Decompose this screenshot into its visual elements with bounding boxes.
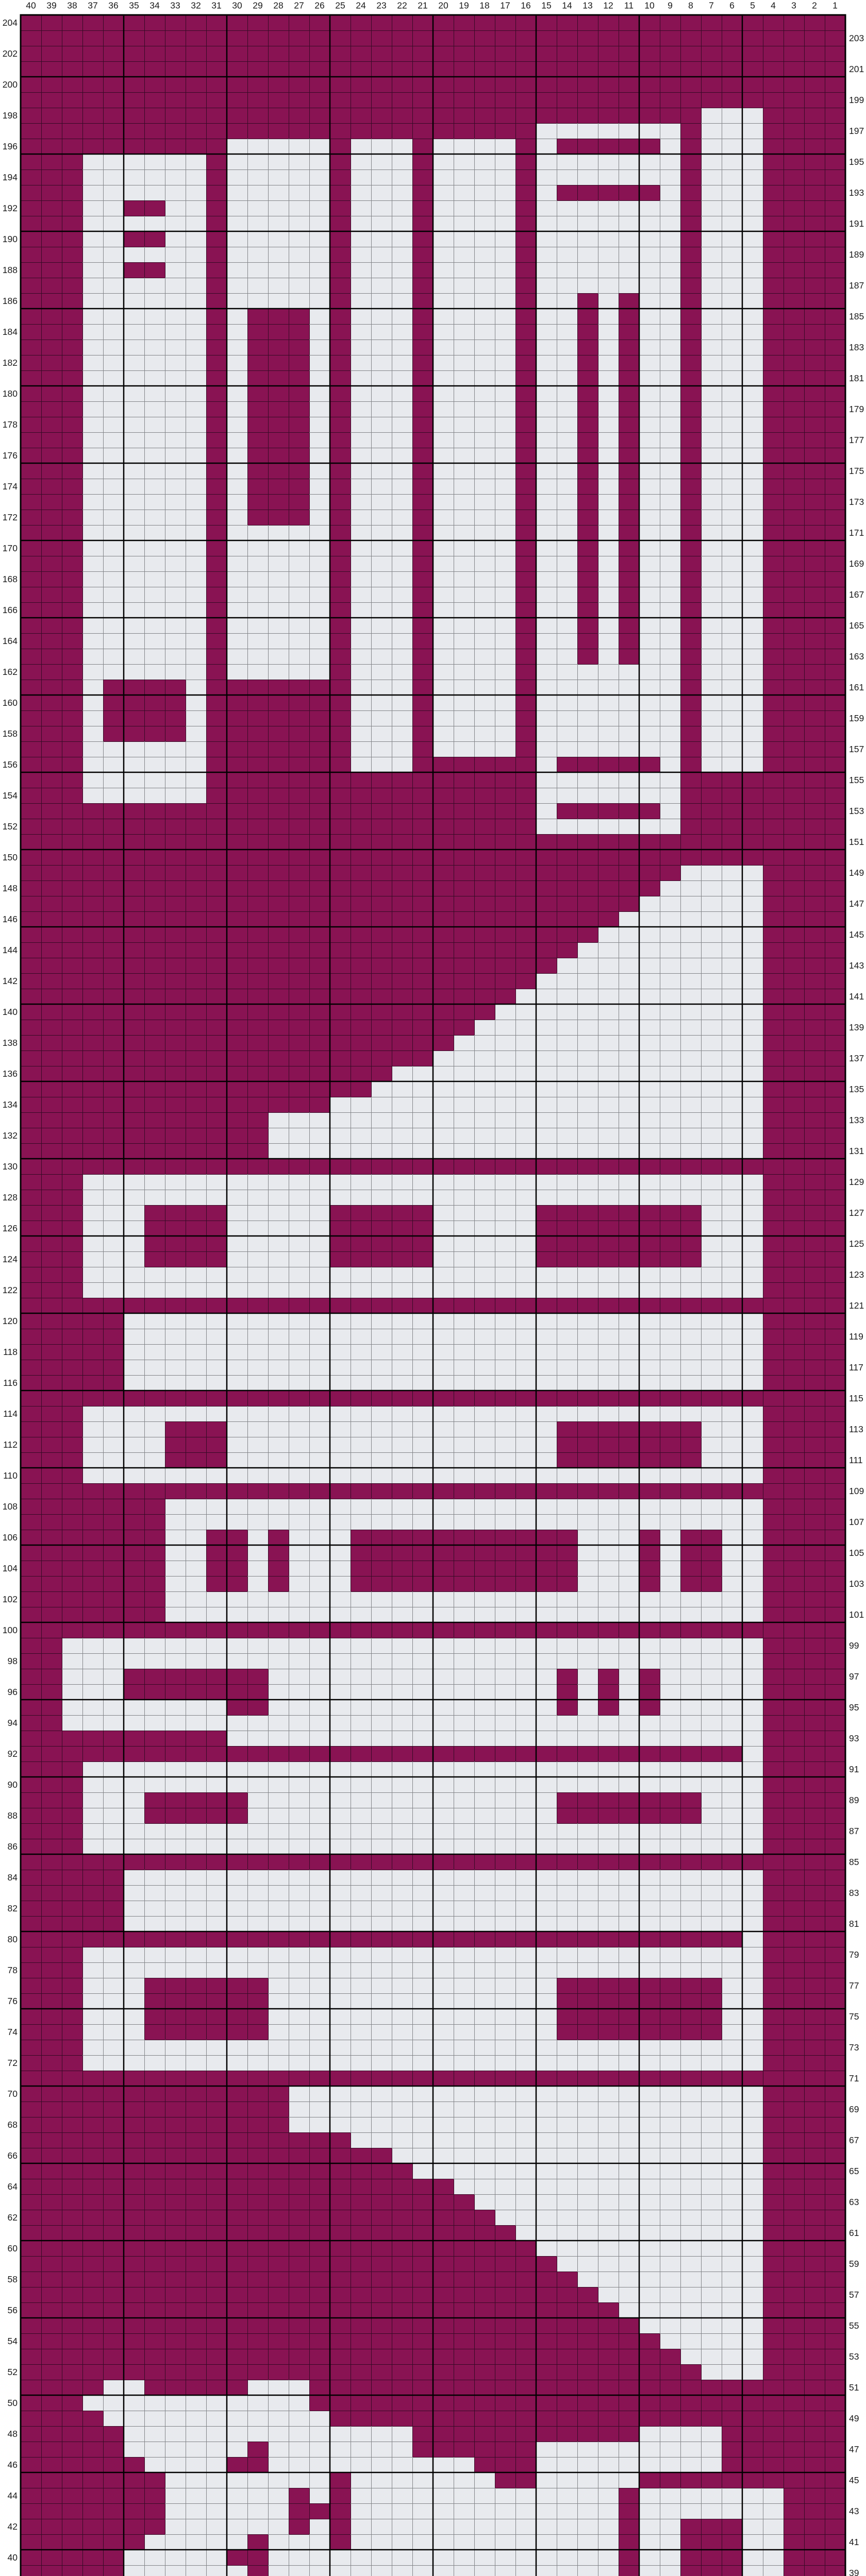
svg-text:100: 100 <box>3 1625 18 1635</box>
svg-text:88: 88 <box>8 1810 18 1821</box>
svg-text:7: 7 <box>709 1 714 11</box>
svg-text:153: 153 <box>849 806 864 816</box>
svg-text:56: 56 <box>8 2305 18 2315</box>
svg-text:177: 177 <box>849 435 864 445</box>
svg-text:21: 21 <box>418 1 427 11</box>
svg-text:42: 42 <box>8 2521 18 2532</box>
svg-text:114: 114 <box>3 1409 18 1419</box>
svg-text:110: 110 <box>3 1470 18 1481</box>
svg-text:14: 14 <box>562 1 572 11</box>
svg-text:8: 8 <box>688 1 693 11</box>
svg-text:6: 6 <box>729 1 735 11</box>
svg-text:113: 113 <box>849 1424 863 1434</box>
svg-text:171: 171 <box>849 528 864 538</box>
svg-text:26: 26 <box>314 1 324 11</box>
svg-text:141: 141 <box>849 991 864 1002</box>
svg-text:117: 117 <box>849 1362 863 1372</box>
svg-text:9: 9 <box>668 1 673 11</box>
svg-text:25: 25 <box>335 1 345 11</box>
svg-text:162: 162 <box>3 667 18 677</box>
svg-text:122: 122 <box>3 1285 18 1295</box>
svg-text:199: 199 <box>849 95 864 105</box>
svg-text:4: 4 <box>771 1 776 11</box>
svg-text:81: 81 <box>849 1919 859 1929</box>
svg-text:126: 126 <box>3 1223 18 1233</box>
svg-text:1: 1 <box>832 1 838 11</box>
svg-text:200: 200 <box>3 79 18 90</box>
svg-text:170: 170 <box>3 543 18 553</box>
svg-text:39: 39 <box>849 2568 859 2576</box>
svg-text:20: 20 <box>438 1 448 11</box>
svg-text:150: 150 <box>3 852 18 862</box>
svg-text:169: 169 <box>849 558 864 569</box>
svg-text:119: 119 <box>849 1331 863 1342</box>
svg-text:137: 137 <box>849 1053 864 1063</box>
svg-text:86: 86 <box>8 1841 18 1852</box>
svg-text:194: 194 <box>3 172 18 182</box>
svg-text:197: 197 <box>849 126 864 136</box>
svg-text:83: 83 <box>849 1888 859 1898</box>
svg-text:133: 133 <box>849 1115 864 1125</box>
svg-text:130: 130 <box>3 1161 18 1172</box>
svg-text:89: 89 <box>849 1795 859 1805</box>
svg-text:47: 47 <box>849 2444 859 2454</box>
svg-text:61: 61 <box>849 2228 859 2238</box>
svg-text:168: 168 <box>3 574 18 584</box>
svg-text:44: 44 <box>8 2490 18 2501</box>
svg-text:10: 10 <box>644 1 655 11</box>
svg-text:160: 160 <box>3 698 18 708</box>
svg-text:40: 40 <box>8 2552 18 2563</box>
svg-text:167: 167 <box>849 589 864 600</box>
svg-text:128: 128 <box>3 1192 18 1202</box>
svg-text:90: 90 <box>8 1780 18 1790</box>
svg-text:68: 68 <box>8 2120 18 2130</box>
svg-text:124: 124 <box>3 1254 18 1264</box>
svg-text:102: 102 <box>3 1594 18 1604</box>
svg-text:123: 123 <box>849 1269 864 1280</box>
svg-text:165: 165 <box>849 620 864 631</box>
svg-text:38: 38 <box>67 1 77 11</box>
svg-text:203: 203 <box>849 33 864 43</box>
svg-text:98: 98 <box>8 1656 18 1666</box>
svg-text:65: 65 <box>849 2166 859 2176</box>
svg-text:156: 156 <box>3 759 18 770</box>
svg-text:5: 5 <box>750 1 755 11</box>
svg-text:173: 173 <box>849 497 864 507</box>
svg-text:40: 40 <box>26 1 36 11</box>
svg-text:121: 121 <box>849 1300 864 1311</box>
svg-text:23: 23 <box>376 1 386 11</box>
svg-text:51: 51 <box>849 2382 859 2393</box>
svg-text:112: 112 <box>3 1439 18 1450</box>
svg-text:152: 152 <box>3 821 18 832</box>
svg-text:196: 196 <box>3 141 18 151</box>
svg-text:129: 129 <box>849 1177 864 1187</box>
svg-text:154: 154 <box>3 790 18 801</box>
svg-text:146: 146 <box>3 914 18 924</box>
svg-text:193: 193 <box>849 188 864 198</box>
svg-text:127: 127 <box>849 1208 864 1218</box>
svg-text:29: 29 <box>253 1 262 11</box>
svg-text:179: 179 <box>849 404 864 414</box>
svg-text:135: 135 <box>849 1084 864 1094</box>
svg-text:201: 201 <box>849 64 864 74</box>
svg-text:27: 27 <box>294 1 304 11</box>
svg-text:50: 50 <box>8 2398 18 2408</box>
svg-text:92: 92 <box>8 1749 18 1759</box>
svg-text:66: 66 <box>8 2150 18 2161</box>
svg-text:136: 136 <box>3 1069 18 1079</box>
svg-text:46: 46 <box>8 2460 18 2470</box>
svg-text:15: 15 <box>541 1 551 11</box>
svg-text:159: 159 <box>849 713 864 723</box>
svg-text:35: 35 <box>129 1 139 11</box>
svg-text:85: 85 <box>849 1857 859 1867</box>
svg-text:161: 161 <box>849 682 864 692</box>
svg-text:80: 80 <box>8 1934 18 1944</box>
svg-text:45: 45 <box>849 2475 859 2485</box>
svg-text:33: 33 <box>170 1 180 11</box>
svg-text:101: 101 <box>849 1609 864 1620</box>
svg-text:67: 67 <box>849 2135 859 2145</box>
svg-text:96: 96 <box>8 1687 18 1697</box>
svg-text:91: 91 <box>849 1764 859 1774</box>
svg-text:93: 93 <box>849 1733 859 1743</box>
svg-text:64: 64 <box>8 2181 18 2192</box>
svg-text:49: 49 <box>849 2413 859 2424</box>
svg-text:71: 71 <box>849 2073 859 2083</box>
svg-text:2: 2 <box>812 1 817 11</box>
svg-text:191: 191 <box>849 218 864 229</box>
svg-text:131: 131 <box>849 1146 864 1156</box>
svg-text:16: 16 <box>521 1 530 11</box>
svg-text:36: 36 <box>108 1 118 11</box>
svg-text:55: 55 <box>849 2320 859 2331</box>
svg-text:32: 32 <box>191 1 201 11</box>
svg-text:77: 77 <box>849 1980 859 1991</box>
svg-text:189: 189 <box>849 249 864 260</box>
svg-text:155: 155 <box>849 775 864 785</box>
svg-text:97: 97 <box>849 1671 859 1682</box>
svg-text:144: 144 <box>3 945 18 955</box>
svg-text:72: 72 <box>8 2058 18 2068</box>
svg-text:115: 115 <box>849 1393 863 1403</box>
svg-text:158: 158 <box>3 728 18 739</box>
svg-text:139: 139 <box>849 1022 864 1032</box>
svg-text:188: 188 <box>3 265 18 275</box>
svg-text:132: 132 <box>3 1130 18 1141</box>
svg-text:82: 82 <box>8 1903 18 1913</box>
svg-text:43: 43 <box>849 2506 859 2516</box>
svg-text:195: 195 <box>849 157 864 167</box>
svg-text:190: 190 <box>3 234 18 244</box>
svg-text:147: 147 <box>849 899 864 909</box>
svg-text:108: 108 <box>3 1501 18 1512</box>
svg-text:28: 28 <box>273 1 283 11</box>
svg-text:87: 87 <box>849 1826 859 1836</box>
svg-text:103: 103 <box>849 1579 864 1589</box>
svg-text:151: 151 <box>849 837 864 847</box>
svg-text:69: 69 <box>849 2104 859 2114</box>
svg-text:142: 142 <box>3 976 18 986</box>
svg-text:192: 192 <box>3 203 18 213</box>
svg-text:17: 17 <box>500 1 510 11</box>
svg-text:172: 172 <box>3 512 18 522</box>
svg-text:187: 187 <box>849 280 864 291</box>
svg-text:185: 185 <box>849 311 864 321</box>
svg-text:138: 138 <box>3 1038 18 1048</box>
svg-text:116: 116 <box>3 1378 18 1388</box>
svg-text:183: 183 <box>849 342 864 352</box>
svg-text:176: 176 <box>3 450 18 461</box>
svg-text:178: 178 <box>3 419 18 430</box>
svg-text:30: 30 <box>232 1 242 11</box>
svg-text:70: 70 <box>8 2089 18 2099</box>
svg-text:41: 41 <box>849 2537 859 2547</box>
svg-text:13: 13 <box>582 1 592 11</box>
svg-text:145: 145 <box>849 929 864 940</box>
svg-text:204: 204 <box>3 18 18 28</box>
svg-text:34: 34 <box>149 1 160 11</box>
svg-text:105: 105 <box>849 1548 864 1558</box>
svg-text:63: 63 <box>849 2197 859 2207</box>
svg-text:94: 94 <box>8 1718 18 1728</box>
svg-text:164: 164 <box>3 636 18 646</box>
svg-text:73: 73 <box>849 2042 859 2053</box>
svg-text:148: 148 <box>3 883 18 893</box>
svg-text:120: 120 <box>3 1316 18 1326</box>
svg-text:157: 157 <box>849 744 864 754</box>
svg-text:104: 104 <box>3 1563 18 1573</box>
svg-text:99: 99 <box>849 1640 859 1651</box>
svg-text:75: 75 <box>849 2011 859 2022</box>
svg-text:175: 175 <box>849 466 864 476</box>
svg-text:111: 111 <box>849 1455 863 1465</box>
svg-text:3: 3 <box>791 1 796 11</box>
svg-text:166: 166 <box>3 605 18 615</box>
svg-text:180: 180 <box>3 388 18 399</box>
svg-text:109: 109 <box>849 1486 864 1496</box>
svg-text:95: 95 <box>849 1702 859 1713</box>
svg-text:37: 37 <box>88 1 97 11</box>
svg-text:59: 59 <box>849 2259 859 2269</box>
svg-text:57: 57 <box>849 2290 859 2300</box>
svg-text:84: 84 <box>8 1872 18 1883</box>
svg-text:53: 53 <box>849 2351 859 2362</box>
svg-text:74: 74 <box>8 2027 18 2037</box>
svg-text:181: 181 <box>849 373 864 383</box>
svg-text:125: 125 <box>849 1239 864 1249</box>
svg-text:76: 76 <box>8 1996 18 2006</box>
svg-text:24: 24 <box>356 1 366 11</box>
svg-text:149: 149 <box>849 868 864 878</box>
svg-text:18: 18 <box>479 1 489 11</box>
svg-text:19: 19 <box>459 1 469 11</box>
svg-text:39: 39 <box>46 1 56 11</box>
svg-text:118: 118 <box>3 1347 18 1357</box>
svg-text:62: 62 <box>8 2212 18 2223</box>
svg-text:52: 52 <box>8 2367 18 2377</box>
svg-text:60: 60 <box>8 2243 18 2253</box>
svg-text:202: 202 <box>3 48 18 59</box>
svg-text:107: 107 <box>849 1517 864 1527</box>
svg-text:184: 184 <box>3 327 18 337</box>
svg-text:143: 143 <box>849 960 864 971</box>
svg-text:174: 174 <box>3 481 18 492</box>
svg-text:12: 12 <box>603 1 613 11</box>
svg-text:182: 182 <box>3 358 18 368</box>
svg-text:22: 22 <box>397 1 407 11</box>
svg-text:78: 78 <box>8 1965 18 1975</box>
svg-text:106: 106 <box>3 1532 18 1543</box>
svg-text:163: 163 <box>849 651 864 662</box>
svg-text:48: 48 <box>8 2429 18 2439</box>
svg-text:134: 134 <box>3 1099 18 1110</box>
svg-text:79: 79 <box>849 1950 859 1960</box>
svg-text:198: 198 <box>3 110 18 121</box>
svg-text:58: 58 <box>8 2274 18 2284</box>
svg-text:140: 140 <box>3 1007 18 1017</box>
svg-text:54: 54 <box>8 2336 18 2346</box>
svg-text:186: 186 <box>3 296 18 306</box>
svg-text:31: 31 <box>211 1 221 11</box>
svg-text:11: 11 <box>624 1 634 11</box>
